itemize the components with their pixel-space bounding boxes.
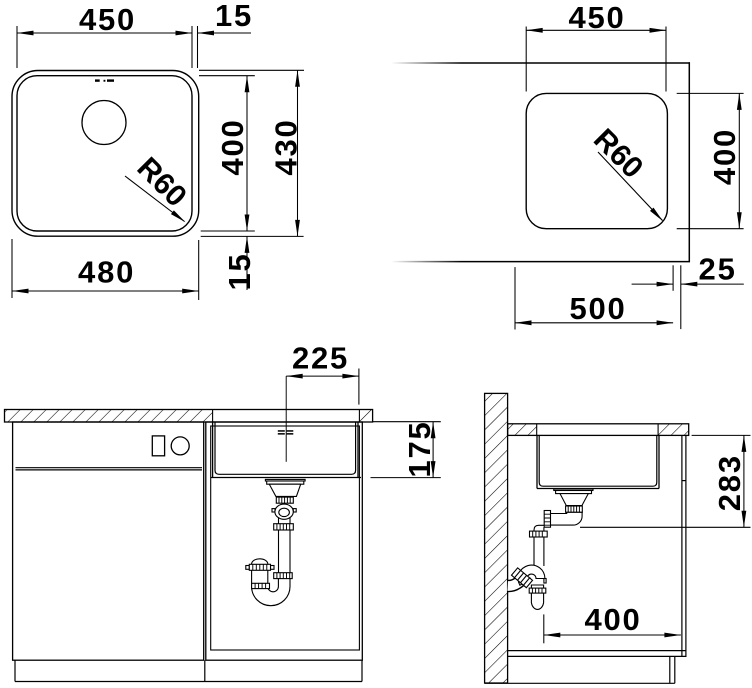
- svg-text:400: 400: [584, 602, 641, 637]
- svg-text:400: 400: [707, 128, 742, 185]
- svg-text:450: 450: [79, 2, 136, 37]
- svg-text:25: 25: [699, 251, 737, 286]
- svg-text:15: 15: [222, 252, 257, 290]
- svg-text:175: 175: [402, 420, 437, 477]
- svg-text:500: 500: [569, 291, 626, 326]
- svg-text:283: 283: [712, 454, 747, 511]
- svg-text:480: 480: [78, 255, 135, 290]
- svg-text:450: 450: [568, 0, 625, 35]
- svg-text:400: 400: [215, 118, 250, 175]
- svg-text:15: 15: [215, 0, 253, 33]
- svg-text:225: 225: [292, 340, 349, 375]
- svg-text:430: 430: [269, 118, 304, 175]
